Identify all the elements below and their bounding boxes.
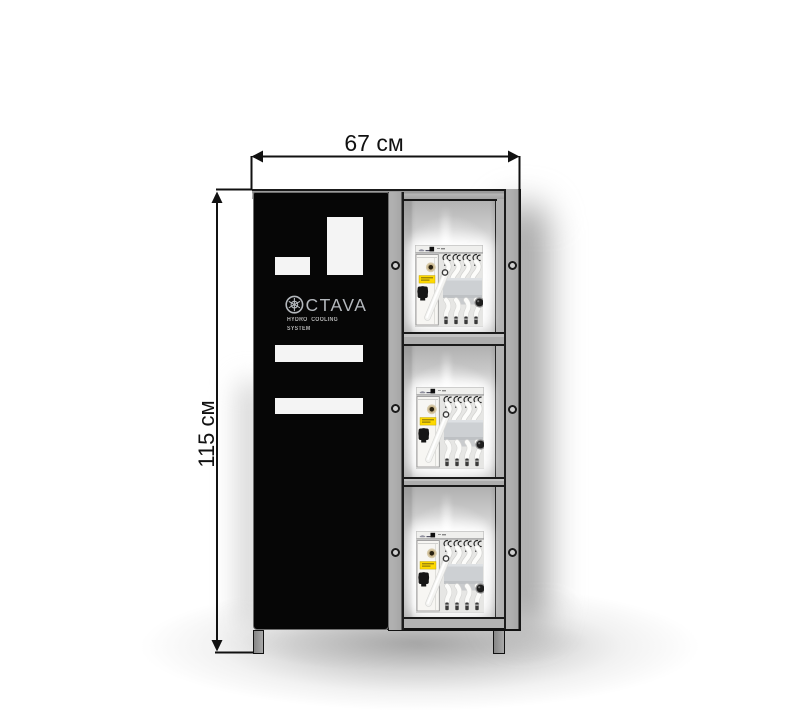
svg-text:115 см: 115 см	[194, 400, 219, 467]
svg-text:67 см: 67 см	[344, 130, 403, 156]
